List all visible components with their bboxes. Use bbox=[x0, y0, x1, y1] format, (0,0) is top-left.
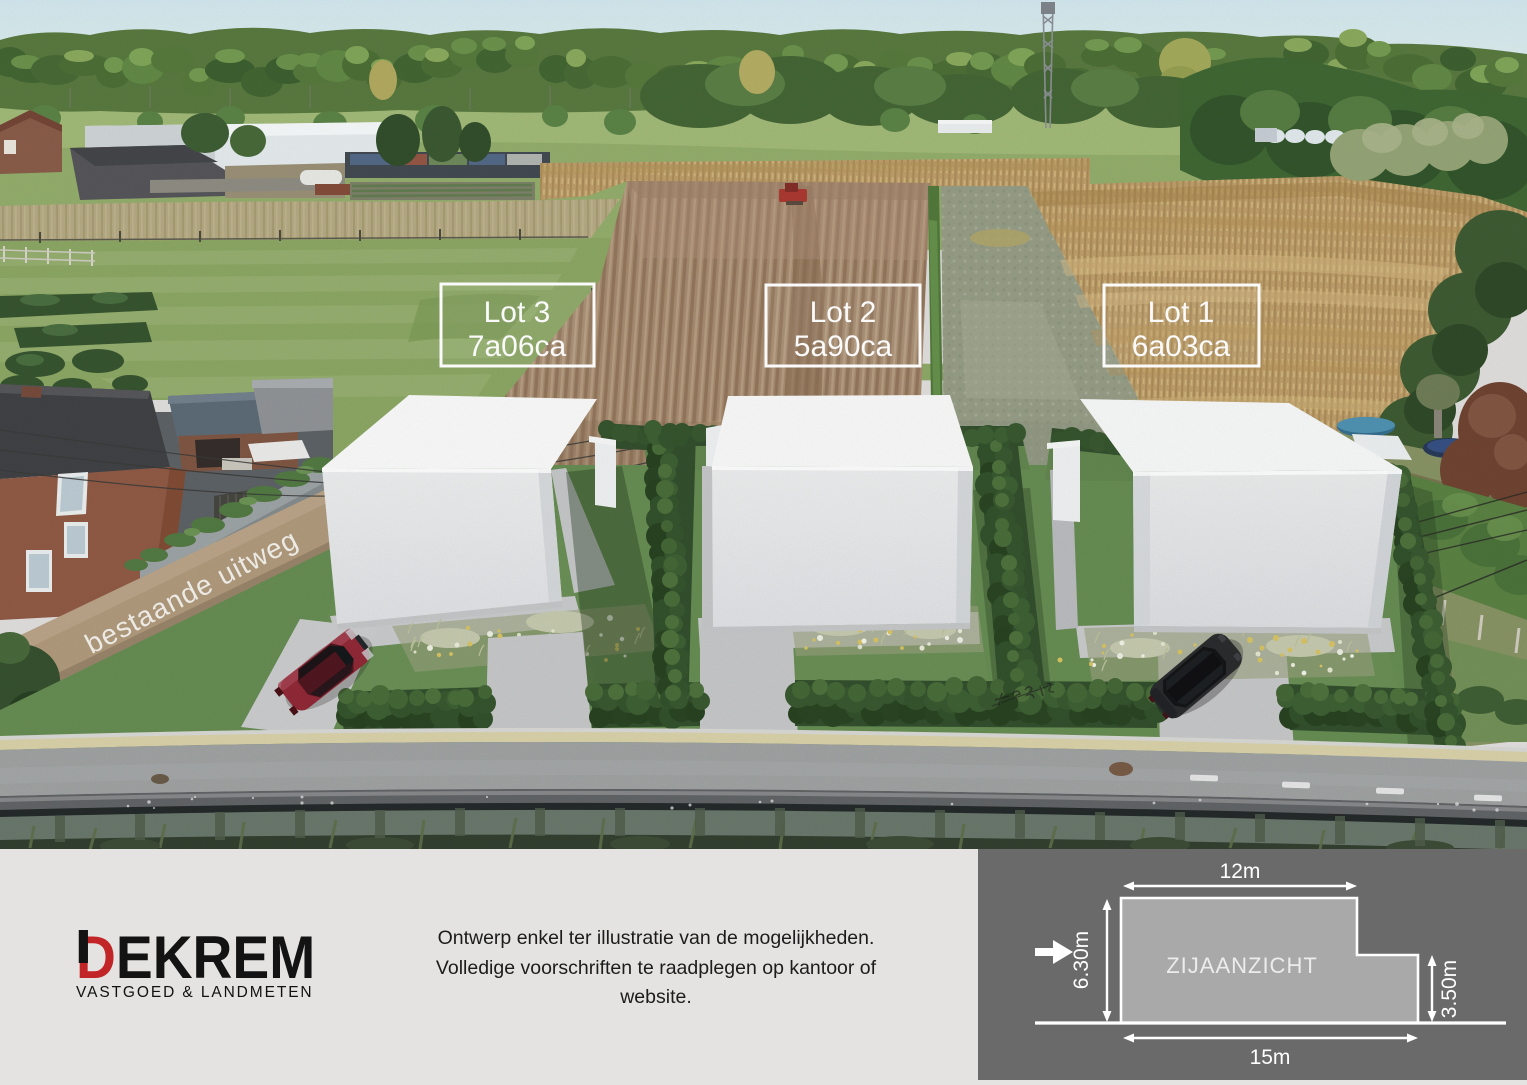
svg-text:15m: 15m bbox=[1250, 1046, 1291, 1069]
svg-text:ZIJAANZICHT: ZIJAANZICHT bbox=[1166, 953, 1318, 978]
svg-text:12m: 12m bbox=[1220, 860, 1261, 883]
svg-text:6.30m: 6.30m bbox=[1070, 931, 1093, 989]
svg-text:3.50m: 3.50m bbox=[1438, 960, 1461, 1018]
